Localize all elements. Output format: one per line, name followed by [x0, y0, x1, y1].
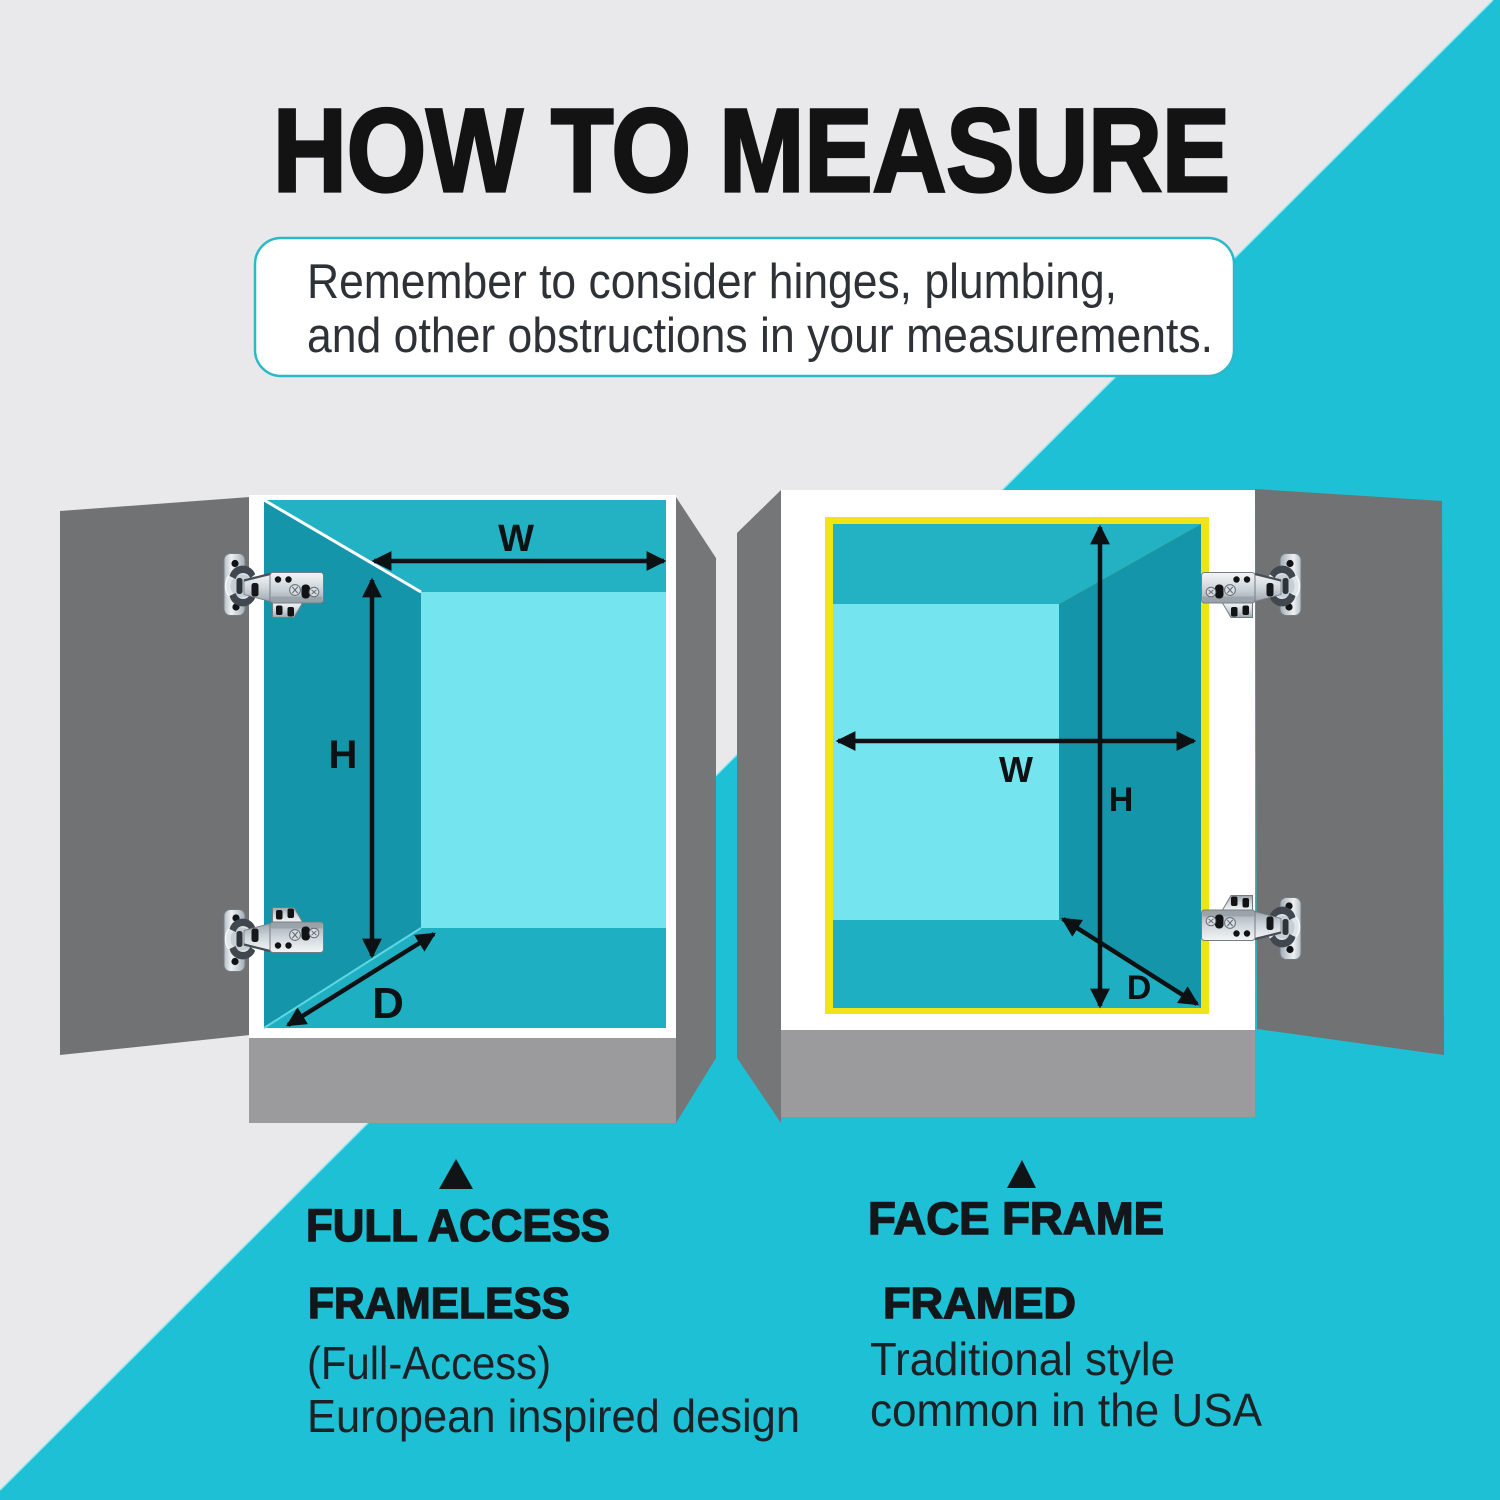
svg-text:Remember to consider hinges, p: Remember to consider hinges, plumbing,	[307, 255, 1117, 309]
svg-text:D: D	[1127, 969, 1152, 1007]
svg-text:H: H	[1109, 781, 1134, 819]
svg-text:and other obstructions in your: and other obstructions in your measureme…	[307, 309, 1213, 363]
svg-text:D: D	[372, 979, 404, 1028]
svg-text:HOW TO MEASURE: HOW TO MEASURE	[273, 85, 1230, 217]
svg-text:H: H	[329, 733, 358, 777]
svg-text:FULL ACCESS: FULL ACCESS	[306, 1200, 610, 1251]
svg-text:common in the USA: common in the USA	[870, 1384, 1262, 1436]
svg-text:W: W	[999, 749, 1033, 790]
svg-text:Traditional style: Traditional style	[870, 1333, 1175, 1385]
svg-text:W: W	[498, 518, 534, 560]
svg-text:(Full-Access): (Full-Access)	[307, 1337, 551, 1389]
svg-text:FRAMELESS: FRAMELESS	[308, 1279, 570, 1328]
svg-text:FACE FRAME: FACE FRAME	[868, 1193, 1164, 1244]
svg-text:FRAMED: FRAMED	[883, 1279, 1076, 1328]
svg-text:European inspired design: European inspired design	[307, 1390, 800, 1442]
